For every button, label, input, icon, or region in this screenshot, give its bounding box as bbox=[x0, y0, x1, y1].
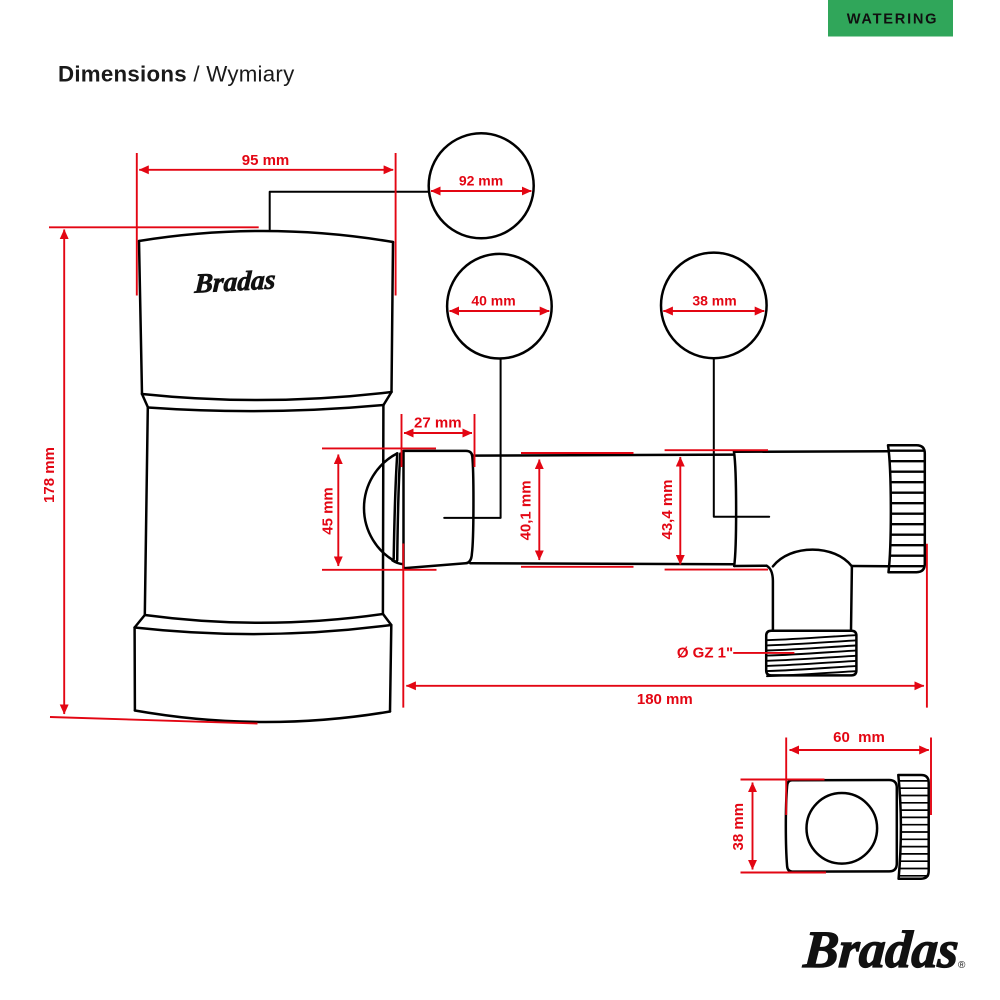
svg-text:Ø GZ 1": Ø GZ 1" bbox=[677, 645, 733, 662]
svg-text:38 mm: 38 mm bbox=[730, 803, 747, 851]
svg-text:178 mm: 178 mm bbox=[41, 447, 58, 503]
svg-text:95 mm: 95 mm bbox=[242, 152, 290, 169]
svg-text:45 mm: 45 mm bbox=[320, 487, 337, 535]
svg-text:180 mm: 180 mm bbox=[637, 691, 693, 708]
svg-text:40,1 mm: 40,1 mm bbox=[518, 480, 535, 540]
svg-text:38 mm: 38 mm bbox=[692, 293, 736, 309]
svg-text:Bradas: Bradas bbox=[193, 263, 276, 298]
svg-text:40 mm: 40 mm bbox=[471, 293, 515, 309]
svg-text:Dimensions / Wymiary: Dimensions / Wymiary bbox=[58, 62, 295, 87]
svg-text:27 mm: 27 mm bbox=[414, 415, 462, 432]
svg-text:43,4 mm: 43,4 mm bbox=[659, 479, 676, 539]
svg-text:60 mm: 60 mm bbox=[833, 729, 885, 746]
svg-text:Bradas: Bradas bbox=[801, 921, 961, 979]
svg-text:92 mm: 92 mm bbox=[459, 173, 503, 189]
svg-text:WATERING: WATERING bbox=[847, 12, 939, 28]
svg-text:®: ® bbox=[958, 960, 966, 971]
